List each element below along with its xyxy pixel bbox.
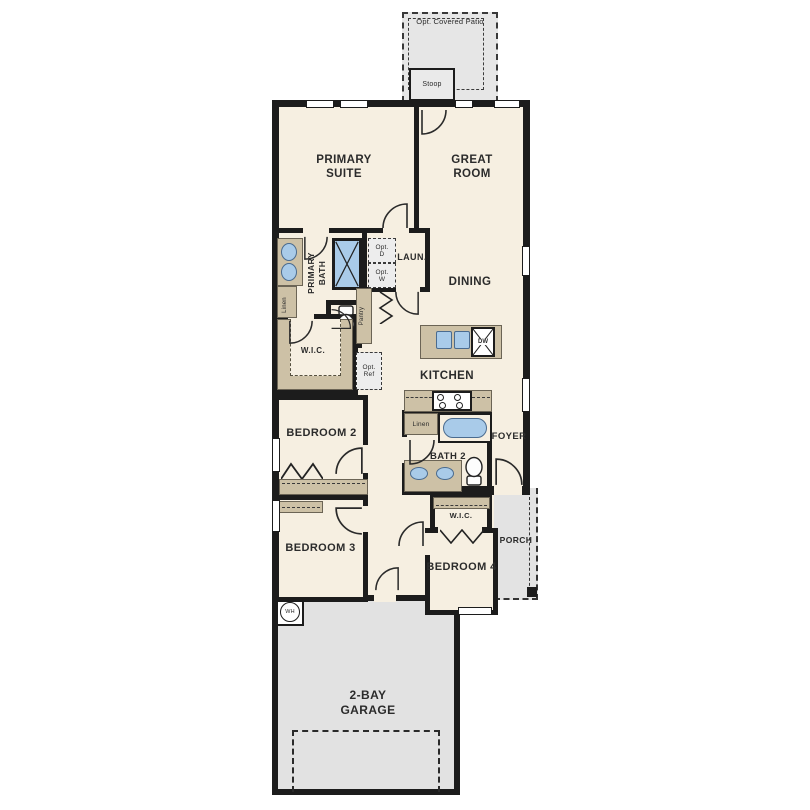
bedroom4-label: BEDROOM 4	[404, 561, 519, 575]
bifold-door-icon	[378, 292, 394, 324]
great-room-label: GREAT ROOM	[442, 153, 502, 182]
kitchen-label: KITCHEN	[402, 369, 492, 383]
foyer-label: FOYER	[480, 431, 538, 443]
bedroom3-closet-rod	[282, 507, 320, 508]
upper-cabinet-dash	[406, 397, 432, 398]
stoop-area: Stoop	[409, 68, 455, 101]
burner-icon	[437, 394, 444, 401]
door-arc-icon	[374, 566, 400, 592]
laundry-label: LAUN.	[386, 252, 438, 263]
door-arc-icon	[397, 520, 425, 548]
garage-door-outline	[292, 730, 440, 792]
double-door-icon	[440, 529, 484, 544]
dishwasher-label-wrap: DW	[471, 327, 495, 357]
primary-wic-label: W.I.C.	[288, 346, 338, 356]
island-sink-icon	[436, 331, 452, 349]
burner-icon	[456, 402, 463, 409]
door-arc-icon	[381, 202, 409, 230]
bedroom4-wic-shelf	[433, 497, 490, 509]
opt-washer-label: Opt. W	[374, 269, 390, 283]
primary-suite-label: PRIMARY SUITE	[309, 153, 379, 182]
window	[522, 378, 530, 412]
bedroom3-label: BEDROOM 3	[263, 542, 378, 556]
door-arc-icon	[420, 108, 448, 136]
door-arc-icon	[334, 506, 364, 536]
window	[458, 607, 492, 615]
opt-ref-label: Opt. Ref	[359, 364, 379, 378]
island-sink-icon	[454, 331, 470, 349]
door-arc-icon	[288, 319, 314, 345]
door-arc-icon	[394, 290, 420, 316]
opening-garage-entry	[374, 592, 396, 602]
pantry-label: Pantry	[359, 300, 369, 332]
window	[272, 438, 280, 472]
bedroom4-wic-rod	[436, 505, 487, 506]
water-heater-label: WH	[276, 598, 304, 626]
upper-cabinet-dash	[472, 397, 490, 398]
door-arc-icon	[330, 308, 352, 330]
sink-icon	[281, 263, 297, 281]
window	[494, 100, 520, 108]
sink-icon	[436, 467, 454, 480]
sink-icon	[410, 467, 428, 480]
bedroom2-closet-shelf	[279, 479, 368, 495]
primary-bath-label: PRIMARY BATH	[306, 241, 332, 305]
opt-washer-box: Opt. W	[368, 263, 396, 288]
burner-icon	[439, 402, 446, 409]
window	[306, 100, 334, 108]
bedroom2-closet-rod	[282, 483, 365, 484]
window	[522, 246, 530, 276]
stoop-label: Stoop	[422, 81, 441, 88]
sink-icon	[281, 243, 297, 261]
bath2-linen-cabinet: Linen	[404, 413, 438, 435]
shower-icon	[332, 238, 362, 290]
door-arc-icon	[494, 457, 524, 487]
covered-patio-label: Opt. Covered Patio	[401, 17, 499, 26]
bifold-door-icon	[281, 461, 323, 479]
bath2-linen-label: Linen	[413, 421, 430, 428]
bedroom4-wic-label: W.I.C.	[436, 511, 486, 520]
opt-ref-box: Opt. Ref	[356, 352, 382, 390]
window	[272, 500, 280, 532]
window	[340, 100, 368, 108]
dining-label: DINING	[425, 275, 515, 289]
porch-post	[527, 587, 537, 597]
burner-icon	[454, 394, 461, 401]
door-arc-icon	[334, 446, 364, 476]
floor-plan: Stoop Opt. Covered Patio WH	[0, 0, 810, 810]
opening-front-door	[494, 486, 522, 495]
opening-bedroom4	[425, 533, 434, 555]
bedroom2-label: BEDROOM 2	[264, 427, 379, 441]
primary-linen-label: Linen	[282, 289, 292, 321]
bath2-label: BATH 2	[408, 451, 488, 463]
porch-label: PORCH	[486, 535, 546, 546]
dishwasher-label: DW	[477, 339, 489, 345]
garage-label: 2-BAY GARAGE	[322, 688, 414, 718]
window	[455, 100, 473, 108]
